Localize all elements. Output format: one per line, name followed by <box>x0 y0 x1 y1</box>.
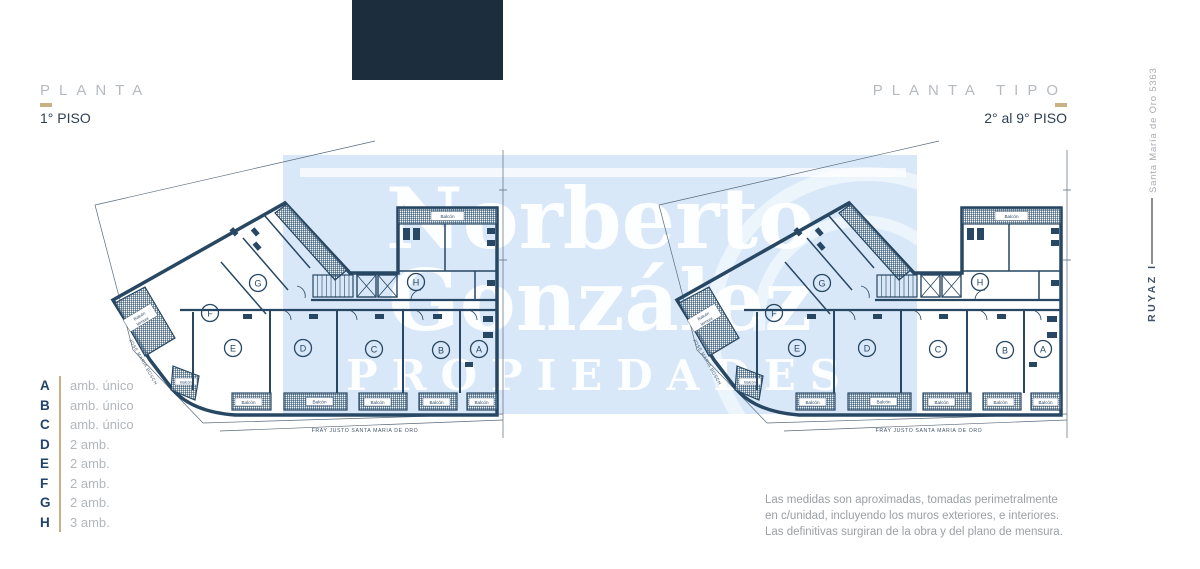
gold-dash-right <box>1055 103 1067 107</box>
legend-desc: amb. único <box>59 376 134 396</box>
unit-circle-h: H <box>408 274 425 291</box>
legend-letter: B <box>40 398 56 413</box>
balcony-label: Balcón <box>241 400 255 405</box>
floorplan-first-floor: Balcón Balcón Balcón Balcón Balcón Balcó… <box>95 141 507 438</box>
legend-letter: C <box>40 417 56 432</box>
balcony-wing <box>275 204 347 280</box>
legend-row: A amb. único <box>40 376 134 396</box>
svg-text:C: C <box>371 344 378 354</box>
legend-desc: amb. único <box>59 396 134 416</box>
header-right: PLANTA TIPO 2° al 9° PISO <box>873 82 1067 126</box>
svg-text:H: H <box>413 277 420 287</box>
svg-text:F: F <box>207 308 213 318</box>
legend-letter: H <box>40 515 56 530</box>
gold-dash-left <box>40 103 52 107</box>
street-label-bottom: FRAY JUSTO SANTA MARIA DE ORO <box>312 428 419 434</box>
legend-row: D 2 amb. <box>40 435 134 455</box>
legend-desc: 2 amb. <box>59 454 110 474</box>
disclaimer: Las medidas son aproximadas, tomadas per… <box>765 492 1095 540</box>
legend-desc: 2 amb. <box>59 493 110 513</box>
balcony-label: Balcón <box>440 214 454 219</box>
brand-logo-block <box>352 0 503 80</box>
balcony-label: Balcón <box>180 381 192 385</box>
legend-desc: 3 amb. <box>59 513 110 533</box>
disclaimer-line: Las medidas son aproximadas, tomadas per… <box>765 492 1095 508</box>
balcony-label: Balcón <box>474 400 488 405</box>
legend-row: F 2 amb. <box>40 474 134 494</box>
legend-letter: G <box>40 495 56 510</box>
svg-text:E: E <box>230 343 236 353</box>
unit-circle-a: A <box>471 341 488 358</box>
interior-walls <box>180 216 497 393</box>
unit-circle-c: C <box>366 341 383 358</box>
legend-desc: 2 amb. <box>59 474 110 494</box>
header-right-title: PLANTA TIPO <box>873 82 1067 99</box>
unit-circle-b: B <box>433 342 450 359</box>
legend-letter: D <box>40 437 56 452</box>
side-divider-line <box>1151 198 1153 264</box>
header-left-floor: 1° PISO <box>40 110 151 126</box>
disclaimer-line: en c/unidad, incluyendo los muros exteri… <box>765 508 1095 524</box>
unit-circle-d: D <box>295 340 312 357</box>
svg-text:B: B <box>438 345 444 355</box>
svg-text:A: A <box>476 344 482 354</box>
legend-row: G 2 amb. <box>40 493 134 513</box>
balconies <box>115 204 497 410</box>
header-right-floor: 2° al 9° PISO <box>873 110 1067 126</box>
balcony-label: Balcón <box>312 400 326 405</box>
legend-row: C amb. único <box>40 415 134 435</box>
legend-row: E 2 amb. <box>40 454 134 474</box>
svg-text:G: G <box>254 278 261 288</box>
svg-text:D: D <box>300 343 307 353</box>
legend-letter: F <box>40 476 56 491</box>
side-address: Santa María de Oro 5363 <box>1148 67 1159 193</box>
floorplan-typical-floor <box>659 141 1071 438</box>
unit-legend: A amb. único B amb. único C amb. único D… <box>40 376 134 532</box>
balcony-label: Balcón <box>370 400 384 405</box>
header-left-title: PLANTA <box>40 82 151 99</box>
legend-row: H 3 amb. <box>40 513 134 533</box>
unit-circle-g: G <box>250 275 267 292</box>
legend-desc: amb. único <box>59 415 134 435</box>
disclaimer-line: Las definitivas surgiran de la obra y de… <box>765 524 1095 540</box>
legend-letter: A <box>40 378 56 393</box>
flyer-page: PLANTA 1° PISO PLANTA TIPO 2° al 9° PISO… <box>0 0 1200 569</box>
legend-desc: 2 amb. <box>59 435 110 455</box>
floorplans-svg: Balcón Balcón Balcón Balcón Balcón Balcó… <box>85 140 1110 455</box>
unit-circle-e: E <box>225 340 242 357</box>
header-left: PLANTA 1° PISO <box>40 82 151 126</box>
side-project-name: RUYAZ I <box>1146 263 1158 322</box>
balcony-label: Balcón <box>429 400 443 405</box>
legend-row: B amb. único <box>40 396 134 416</box>
unit-circle-f: F <box>202 305 219 322</box>
legend-letter: E <box>40 456 56 471</box>
